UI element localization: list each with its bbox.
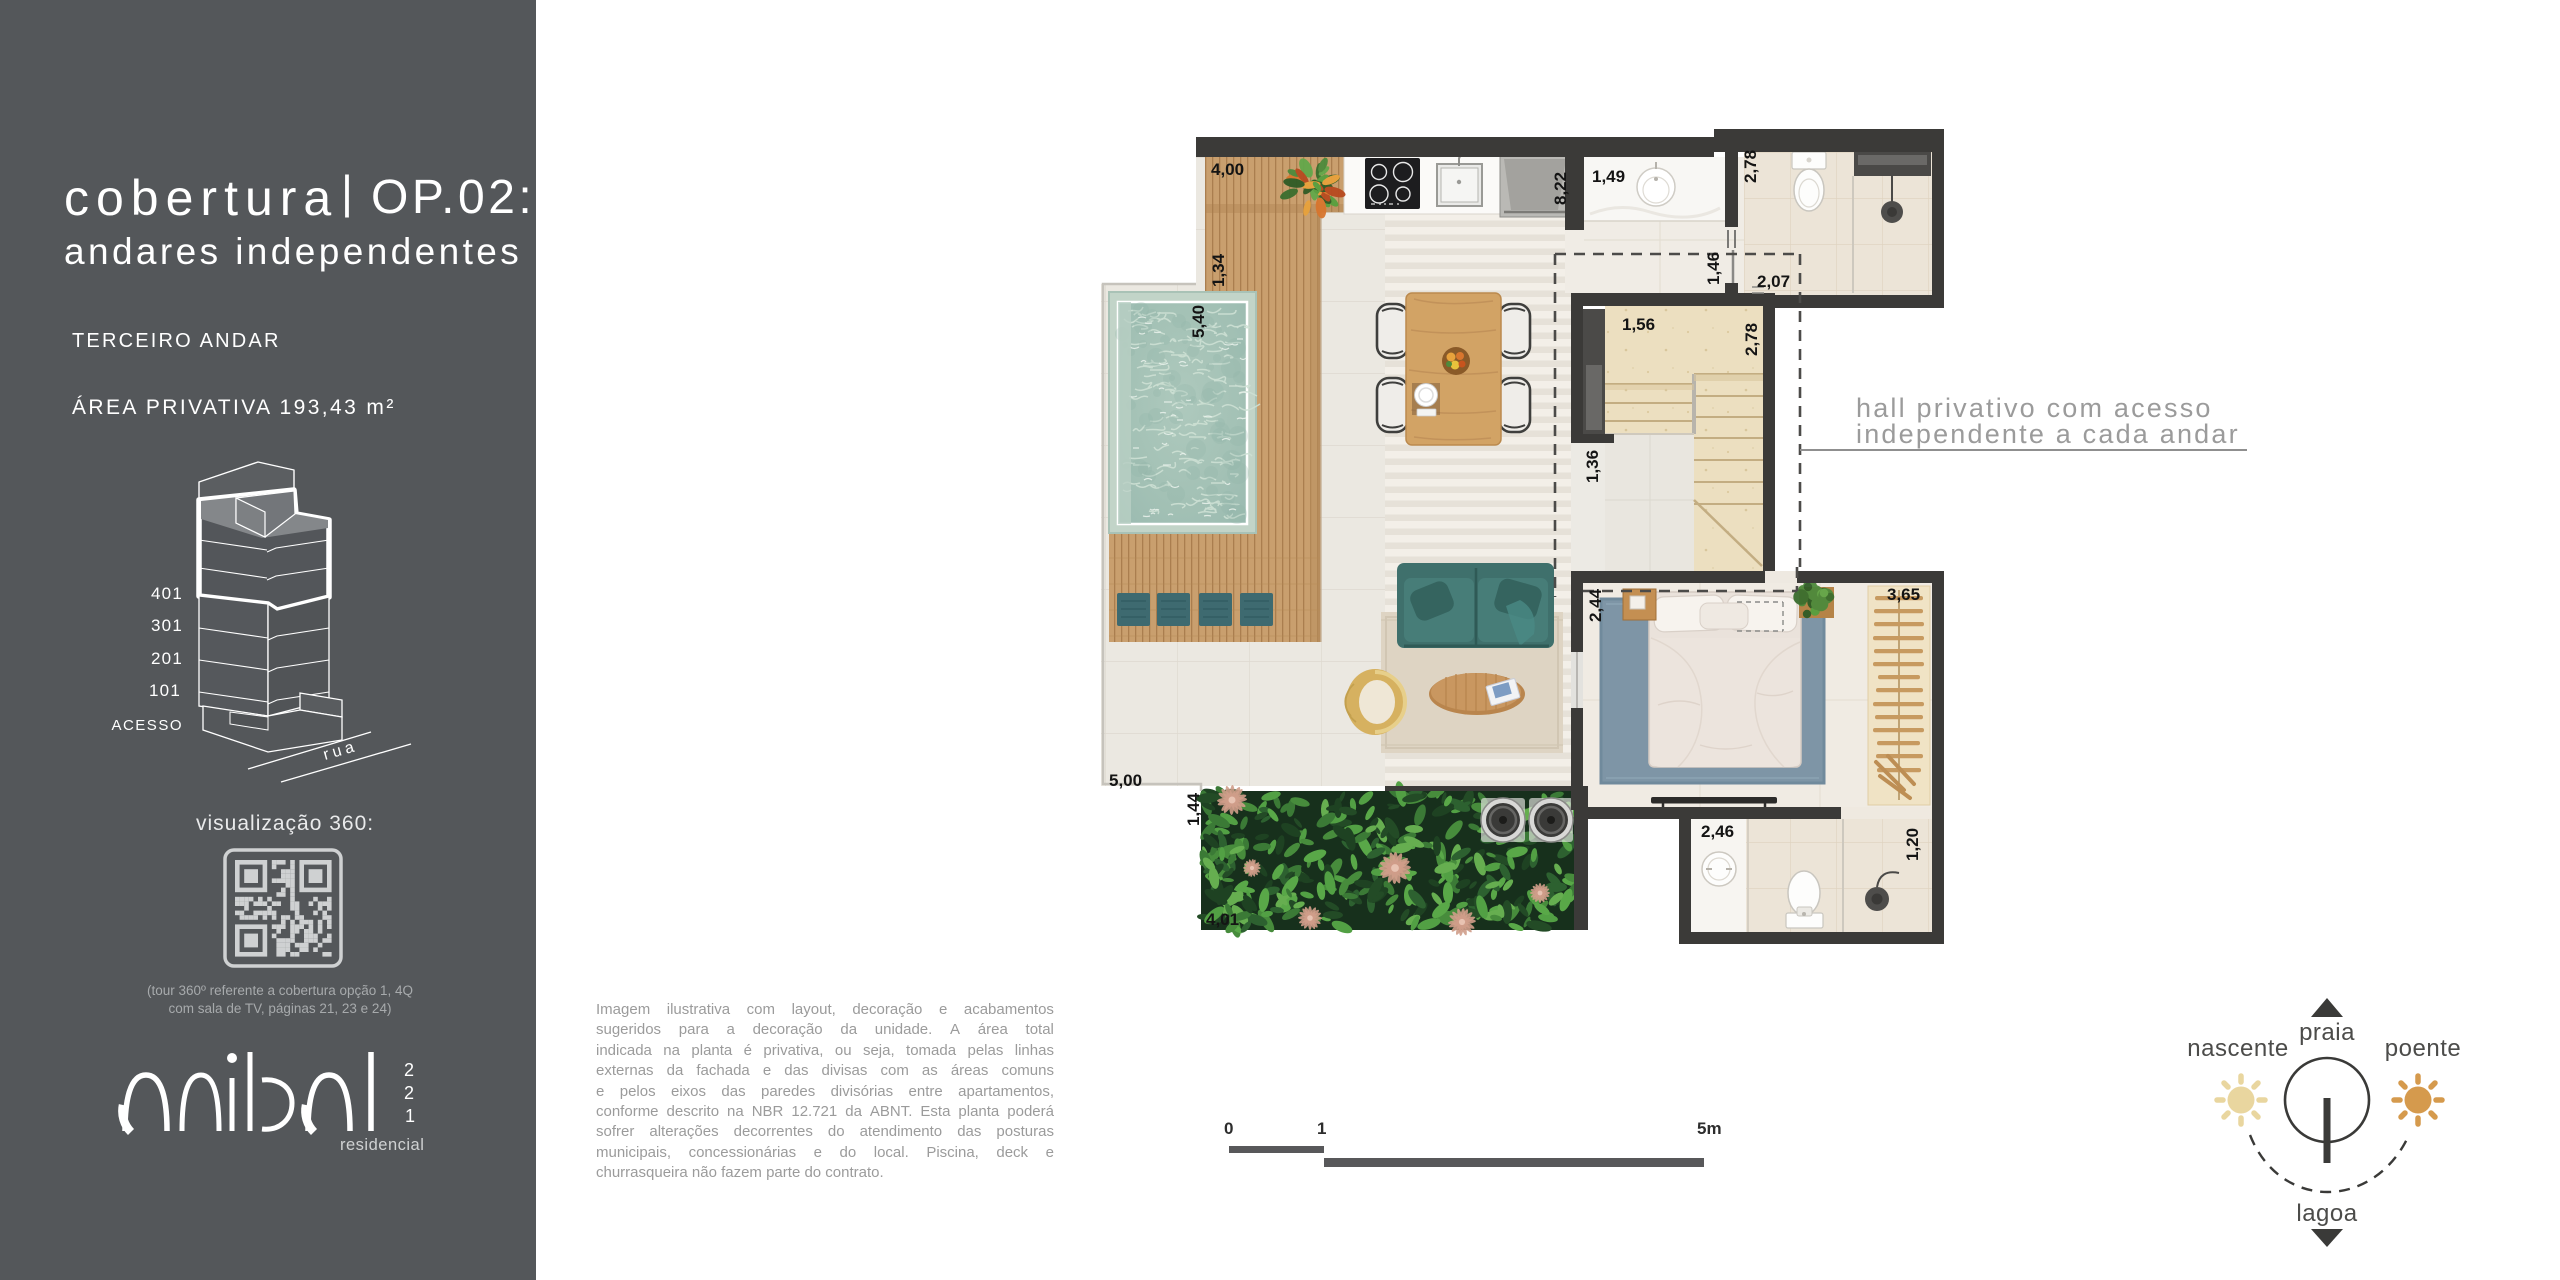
svg-text:nascente: nascente — [2187, 1035, 2288, 1062]
svg-text:2: 2 — [404, 1060, 414, 1080]
svg-text:5,00: 5,00 — [1109, 771, 1142, 790]
svg-text:201: 201 — [151, 649, 183, 668]
svg-text:lagoa: lagoa — [2296, 1200, 2357, 1227]
svg-text:2,46: 2,46 — [1701, 822, 1734, 841]
svg-text:1,20: 1,20 — [1903, 828, 1922, 861]
svg-text:3,65: 3,65 — [1887, 585, 1920, 604]
svg-text:1: 1 — [405, 1106, 415, 1126]
svg-text:4,01: 4,01 — [1206, 910, 1239, 929]
svg-text:2,44: 2,44 — [1586, 588, 1605, 622]
svg-text:2,07: 2,07 — [1757, 272, 1790, 291]
svg-text:2,78: 2,78 — [1741, 150, 1760, 183]
svg-text:101: 101 — [149, 681, 181, 700]
svg-text:residencial: residencial — [340, 1136, 424, 1154]
svg-text:301: 301 — [151, 616, 183, 635]
svg-text:2,78: 2,78 — [1742, 323, 1761, 356]
svg-text:independente a cada andar: independente a cada andar — [1856, 419, 2240, 449]
svg-text:1,36: 1,36 — [1583, 450, 1602, 483]
svg-text:8,22: 8,22 — [1551, 172, 1570, 205]
svg-text:ACESSO: ACESSO — [111, 717, 183, 734]
svg-text:1,56: 1,56 — [1622, 315, 1655, 334]
svg-text:4,00: 4,00 — [1211, 160, 1244, 179]
svg-text:1,49: 1,49 — [1592, 167, 1625, 186]
svg-text:5,40: 5,40 — [1189, 305, 1208, 338]
svg-text:1,46: 1,46 — [1704, 252, 1723, 285]
svg-text:1,44: 1,44 — [1184, 792, 1203, 826]
svg-text:2: 2 — [404, 1083, 414, 1103]
svg-text:poente: poente — [2385, 1035, 2461, 1062]
svg-text:401: 401 — [151, 584, 183, 603]
svg-text:praia: praia — [2299, 1019, 2355, 1046]
svg-text:1,34: 1,34 — [1209, 253, 1228, 287]
